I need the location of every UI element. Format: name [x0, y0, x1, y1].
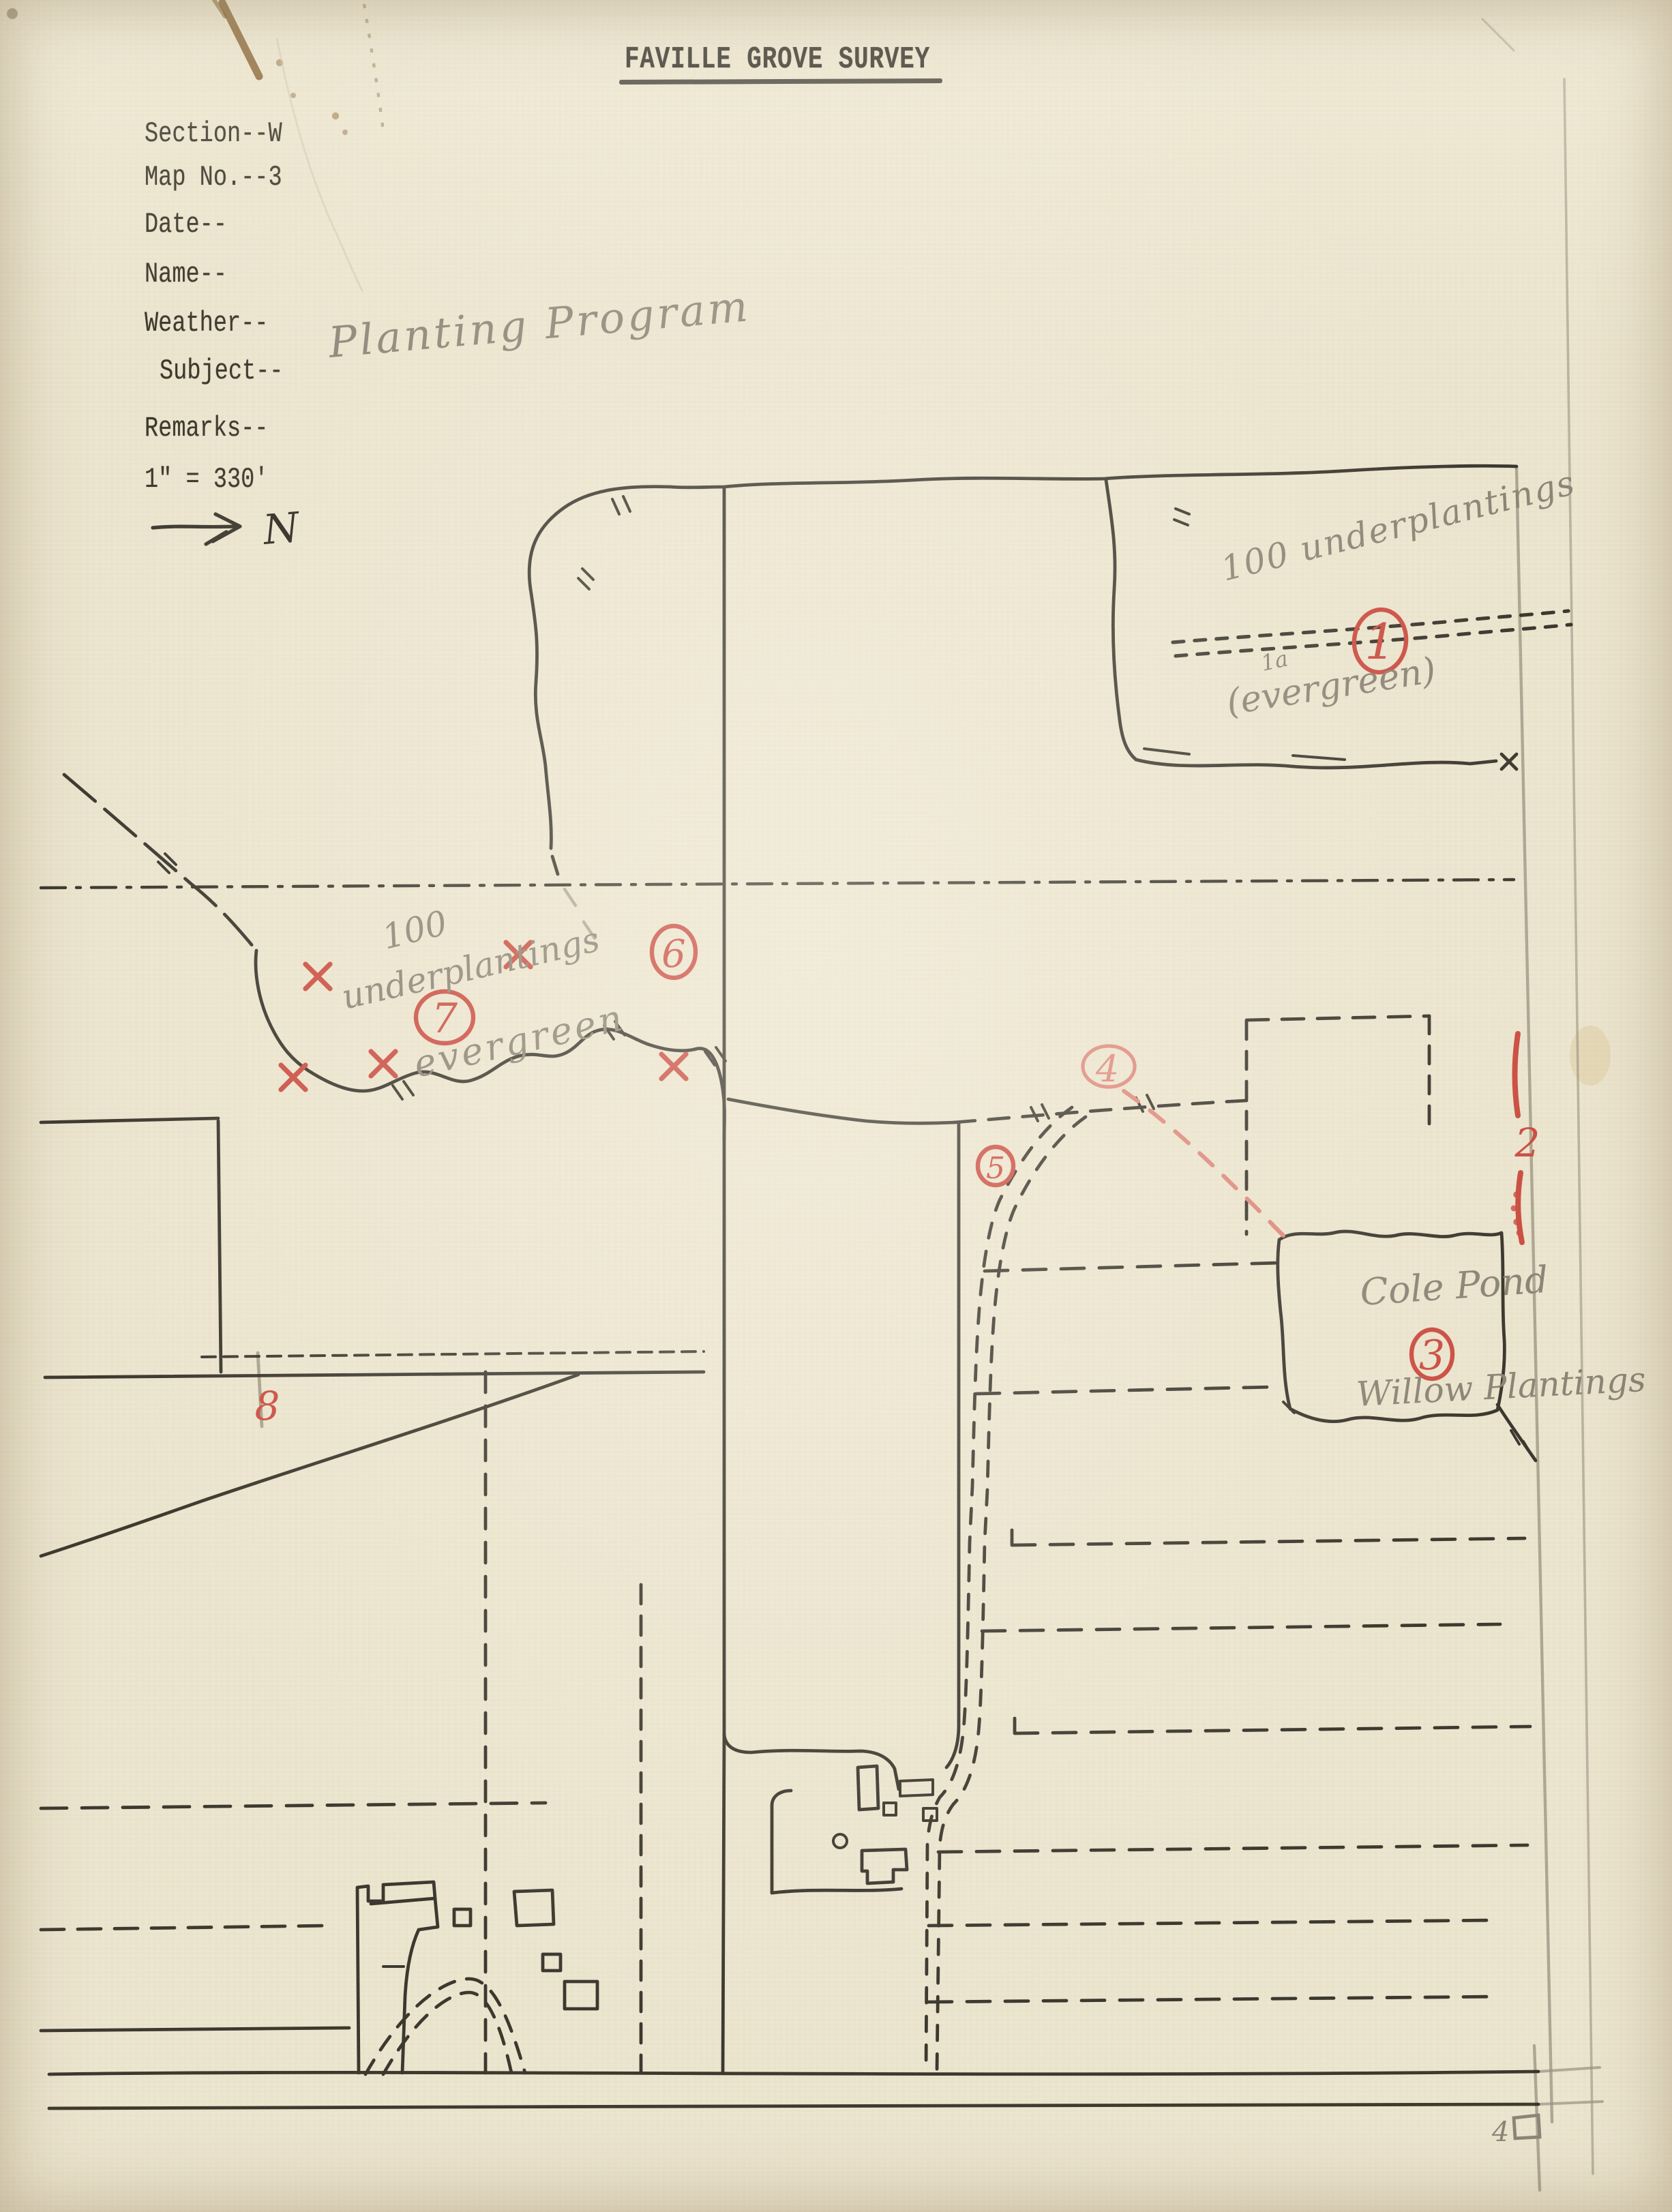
area-number-8: 8	[255, 1383, 280, 1429]
southwest-diagonal	[41, 1375, 578, 1556]
lane-corner	[724, 1735, 899, 1789]
red-area-numbers: 1 2 3 4 5 6 7 8	[255, 613, 1540, 1429]
field-map-no: Map No.--3	[145, 161, 282, 194]
corner-tick	[1482, 19, 1514, 50]
curved-drive-track-1	[365, 1979, 525, 2074]
north-arrow-head	[206, 514, 240, 544]
south-boundary-line-2	[49, 2104, 1538, 2108]
dash-dot-section-line	[41, 880, 1514, 888]
red-pencil-marks: 1 2 3 4 5 6 7 8	[255, 607, 1540, 1429]
area-number-4: 4	[1095, 1047, 1119, 1090]
page-title: FAVILLE GROVE SURVEY	[625, 42, 930, 77]
field-section: Section--W	[145, 117, 282, 150]
red-bracket-upper	[1515, 1034, 1519, 1116]
farmstead-buildings-center	[772, 1766, 937, 1893]
scanned-survey-sheet: 1 2 3 4 5 6 7 8 Planting Program 100 und…	[0, 0, 1672, 2212]
subject-handwritten-value: Planting Program	[326, 281, 752, 368]
grove-blob-west-edge	[1106, 480, 1136, 760]
map-ink-lines	[41, 466, 1571, 2108]
corner-pencil-mark: 4	[1491, 2115, 1540, 2148]
pencil-vertical-line-outer	[1564, 79, 1593, 2174]
annotation-count-west: 100	[378, 903, 451, 957]
dotted-stain-trail	[364, 4, 383, 131]
field-remarks: Remarks--	[145, 412, 268, 445]
label-willow-plantings: Willow Plantings	[1356, 1360, 1647, 1414]
pencil-annotations: Planting Program 100 underplantings 1a (…	[326, 281, 1647, 1414]
yellow-stain	[1570, 1026, 1611, 1086]
field-name: Name--	[145, 258, 227, 290]
annotation-evergreen-ne: (evergreen)	[1224, 650, 1439, 723]
grove-blob-south-edge	[1136, 760, 1496, 768]
field-weather: Weather--	[145, 307, 268, 340]
farmstead-buildings-southwest	[357, 1882, 597, 2074]
winding-road-west-track	[926, 1107, 1072, 2073]
field-date: Date--	[145, 208, 227, 241]
area-number-6: 6	[661, 932, 686, 976]
area-number-2: 2	[1514, 1120, 1540, 1166]
ink-streak-stain	[222, 3, 259, 76]
red-dashed-leader	[1124, 1091, 1283, 1236]
annotation-underplantings-ne: 100 underplantings	[1217, 462, 1579, 588]
field-scale: 1" = 330'	[145, 463, 268, 496]
grove-west-edge	[531, 589, 558, 874]
corner-mark-digit: 4	[1491, 2117, 1509, 2148]
field-subject: Subject--	[160, 355, 283, 387]
survey-x-mark	[1502, 754, 1517, 769]
south-boundary-line-1	[49, 2072, 1538, 2074]
annotation-sub-ne: 1a	[1259, 645, 1290, 676]
paper-crease	[277, 38, 363, 292]
field-boundary-vertical	[946, 1124, 959, 1767]
north-label: N	[260, 503, 303, 554]
north-arrow	[153, 514, 240, 544]
label-cole-pond: Cole Pond	[1359, 1258, 1550, 1314]
area-number-5: 5	[986, 1151, 1005, 1186]
